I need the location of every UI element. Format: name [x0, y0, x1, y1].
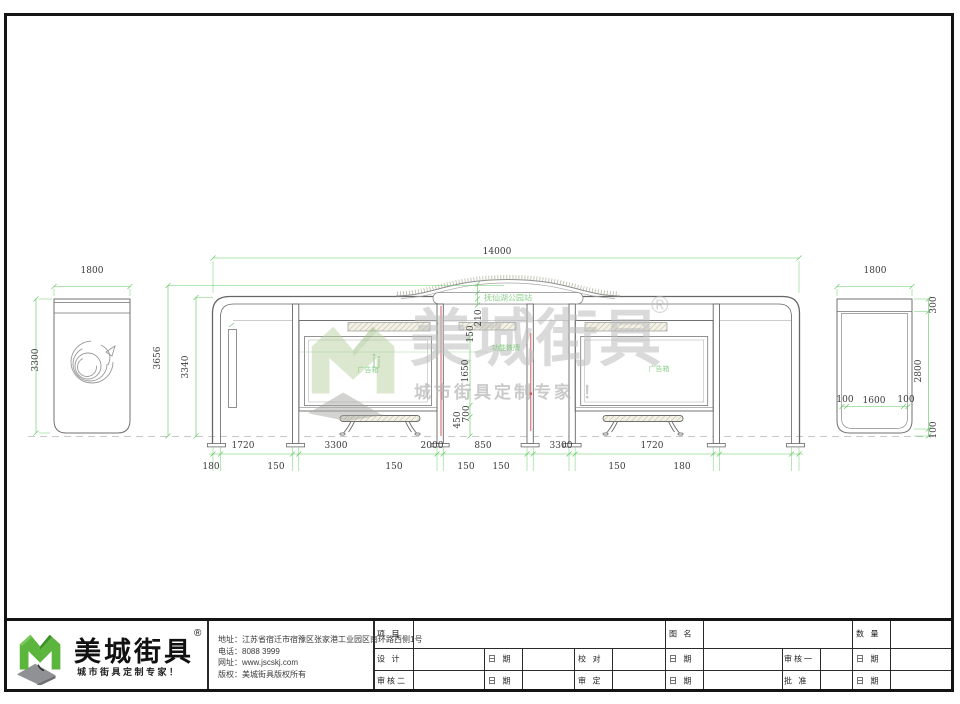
dim-gap-5: 3300: [550, 441, 573, 451]
company-slogan: 城市街具定制专家！: [77, 665, 181, 678]
field-quantity: 数 量: [856, 629, 881, 640]
dim-rightview-top: 300: [929, 296, 939, 313]
watermark-registered-mark: ®: [651, 292, 669, 320]
dim-mid-700: 700: [462, 405, 472, 422]
title-block-top-border: [7, 618, 951, 621]
field-date-6: 日 期: [856, 676, 881, 687]
company-name: 美城街具: [74, 630, 194, 669]
dim-rightview-inner-3: 100: [897, 395, 914, 405]
field-project: 项 目: [377, 629, 402, 640]
field-approver-check: 审 定: [578, 676, 603, 687]
dim-gap-4: 850: [474, 441, 491, 451]
field-date-1: 日 期: [488, 654, 513, 665]
dim-gap-2: 3300: [325, 441, 348, 451]
watermark-brand: 美城街具: [410, 305, 662, 373]
dim-leftview-width: 1800: [81, 266, 104, 276]
dim-rightview-width: 1800: [864, 266, 887, 276]
dim-rightview-inner-1: 100: [836, 395, 853, 405]
dim-post-3: 150: [385, 462, 402, 472]
dim-height-outer: 3656: [153, 347, 163, 370]
dim-gap-1: 1720: [232, 441, 255, 451]
field-date-4: 日 期: [488, 676, 513, 687]
side-panel: [229, 323, 237, 408]
field-date-3: 日 期: [856, 654, 881, 665]
dim-mid-1650: 1650: [461, 360, 471, 383]
dim-rightview-inner-2: 1600: [863, 396, 886, 406]
right-side-view: [837, 299, 912, 433]
dim-gap-6: 1720: [641, 441, 664, 451]
swirl-ornament: [71, 341, 115, 383]
dim-rightview-ground: 100: [929, 421, 939, 438]
dim-post-6: 150: [608, 462, 625, 472]
field-drawing-name: 图 名: [669, 629, 694, 640]
dim-total-width: 14000: [483, 247, 512, 257]
ad-box-right-label: 广告箱: [649, 364, 670, 374]
dim-height-inner: 3340: [181, 356, 191, 379]
dim-post-2: 150: [267, 462, 284, 472]
left-side-view: [54, 299, 130, 433]
company-logo: [13, 627, 71, 685]
dim-mid-210: 210: [474, 309, 484, 326]
center-panel-label: 功能铁牌: [492, 343, 520, 353]
bench-right: [603, 416, 683, 436]
field-checker: 校 对: [578, 654, 603, 665]
field-reviewer-2: 审核二: [377, 676, 407, 687]
dim-post-1: 180: [202, 462, 219, 472]
field-designer: 设 计: [377, 654, 402, 665]
field-date-2: 日 期: [669, 654, 694, 665]
dim-leftview-height: 3300: [31, 349, 41, 372]
company-registered-mark: ®: [194, 628, 201, 639]
dim-mid-150: 150: [466, 325, 476, 342]
dim-post-4: 150: [457, 462, 474, 472]
ad-box-left-label: 广告箱: [358, 365, 379, 375]
watermark-slogan: 城市街具定制专家 ！: [414, 378, 603, 403]
drawing-sheet: 美城街具 ® 城市街具定制专家 ！ 抚仙湖公园站 功能铁牌 广告箱 广告箱 18…: [0, 0, 960, 704]
roof-station-sign-label: 抚仙湖公园站: [484, 293, 532, 304]
field-reviewer-1: 审核一: [784, 654, 814, 665]
base-plates: [208, 444, 805, 447]
dim-post-7: 180: [673, 462, 690, 472]
field-date-5: 日 期: [669, 676, 694, 687]
field-approver: 批 准: [784, 676, 809, 687]
dim-rightview-height: 2800: [914, 360, 924, 383]
dim-gap-3: 2000: [421, 441, 444, 451]
dim-post-5: 150: [492, 462, 509, 472]
dim-mid-450: 450: [453, 411, 463, 428]
